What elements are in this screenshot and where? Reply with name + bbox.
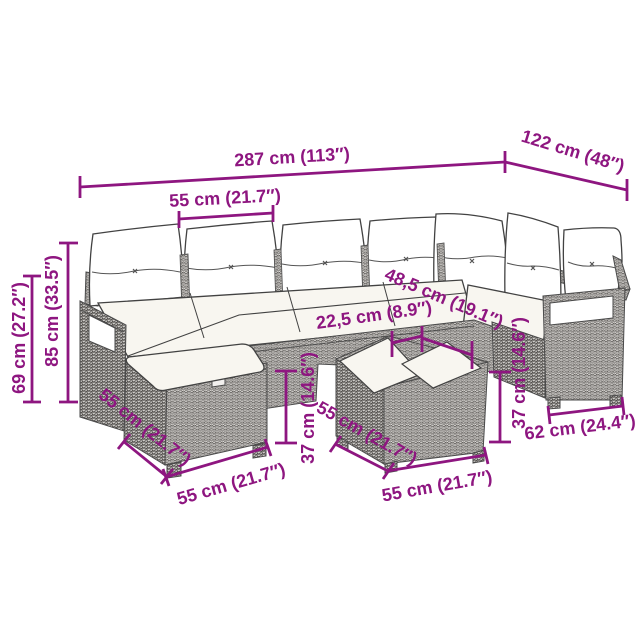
svg-text:69 cm (27.2″): 69 cm (27.2″)	[9, 282, 29, 394]
svg-text:85 cm (33.5″): 85 cm (33.5″)	[42, 255, 62, 367]
svg-text:37 cm (14.6″): 37 cm (14.6″)	[509, 317, 529, 429]
svg-text:37 cm (14.6″): 37 cm (14.6″)	[298, 352, 318, 464]
